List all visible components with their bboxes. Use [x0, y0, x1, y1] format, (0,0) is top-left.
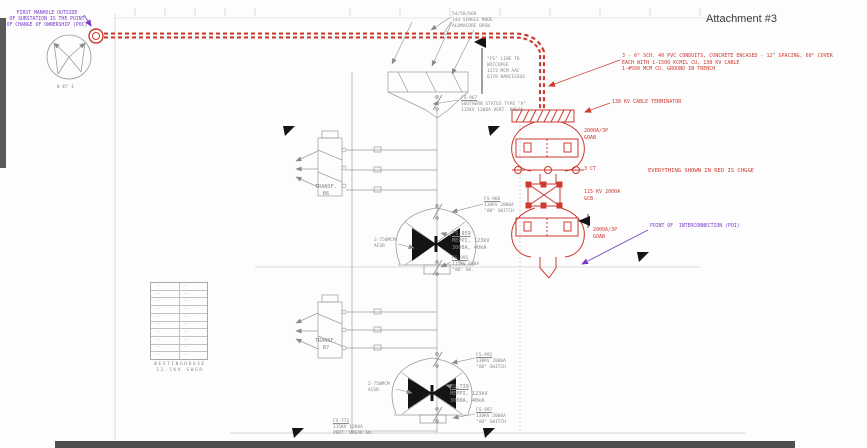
cable-terminator-label: 138 KV CABLE TERMINATOR: [612, 99, 681, 106]
table-cell: ··: [151, 283, 180, 290]
table-row: ·· ··: [151, 352, 207, 359]
table-row: ·· ··: [151, 291, 207, 299]
table-cell: ··: [180, 314, 208, 321]
fs967-label: FS-967 SOUTHERN STATES TYPE "V" 115KV 12…: [461, 96, 526, 114]
table-row: ·· ··: [151, 345, 207, 353]
fs991-label: FS-991 115KV 600A "AB" SW.: [452, 256, 479, 274]
gcb-label: 115 KV 2000A GCB: [584, 189, 620, 202]
table-cell: ··: [180, 283, 208, 290]
acsr-top-label: 2-750MCM ACSR: [374, 238, 396, 250]
fs959-label: FS-959 MEPPI, 123kV 3000A, 40kA: [452, 231, 489, 251]
table-cell: ··: [180, 345, 208, 352]
table-cell: ··: [180, 329, 208, 336]
compass-label: N 45° E: [57, 84, 74, 89]
fs997-label: FS-997 138KV 2000A "AB" SWITCH: [476, 408, 506, 426]
table-cell: ··: [180, 291, 208, 298]
fs992-label: FS-992 138KV 2000A "AB" SWITCH: [476, 353, 506, 371]
table-row: ·· ··: [151, 322, 207, 330]
transf-b6-label: TRANSF. B6: [308, 184, 344, 198]
goab-flag: [578, 214, 590, 228]
table-row: ·· ··: [151, 306, 207, 314]
substation-one-line-drawing: Attachment #3 FIRST MANHOLE OUTSIDE OF S…: [0, 0, 867, 448]
table-cell: ··: [180, 322, 208, 329]
acsr-bottom-label: 2-750MCM ACSR: [368, 382, 390, 394]
opgw-note: 54/58/669 144 SINGLE MODE ALUMACORE OPGW: [452, 12, 493, 30]
table-cell: ··: [180, 337, 208, 344]
red-note-leaders: [549, 60, 620, 112]
table-row: ·· ··: [151, 337, 207, 345]
bus-lines: [230, 72, 745, 433]
table-cell: ··: [151, 337, 180, 344]
table-cell: ··: [151, 322, 180, 329]
table-cell: ··: [151, 352, 180, 359]
device-schedule-table: ·· ·· ·· ·· ·· ·· ·· ·· ·· ·· ·· ·· ·· ·…: [150, 282, 208, 360]
table-cell: ··: [151, 345, 180, 352]
table-cell: ··: [180, 298, 208, 305]
table-cell: ··: [151, 329, 180, 336]
conduit-note: 3 - 6" SCH. 40 PVC CONDUITS, CONCRETE EN…: [622, 53, 833, 73]
goab-bottom-label: 2000A/3P GOAB: [593, 227, 617, 240]
table-cell: ··: [151, 291, 180, 298]
table-cell: ··: [180, 306, 208, 313]
disconnect-switch-symbols: [433, 95, 442, 422]
table-cell: ··: [151, 314, 180, 321]
table-cell: ··: [151, 306, 180, 313]
fs968-label: FS-968 138KV 2000A "AB" SWITCH: [484, 197, 514, 215]
table-row: ·· ··: [151, 283, 207, 291]
table-cell: ··: [151, 298, 180, 305]
poc-note: FIRST MANHOLE OUTSIDE OF SUBSTATION IS T…: [4, 11, 90, 30]
fs771-label: FS-771 115KV 1200A VERT. BREAK SW.: [333, 419, 374, 437]
red-138kv-equipment: [512, 110, 585, 278]
north-arrow-icon: [47, 35, 91, 79]
table-cell: ··: [180, 352, 208, 359]
goab-top-label: 2000A/3P GOAB: [584, 128, 608, 141]
fs739-label: FS-739 MEPPI, 123kV 3000A, 40kA: [450, 384, 487, 404]
table-row: ·· ··: [151, 314, 207, 322]
scan-dark-edges: [0, 18, 795, 448]
ct-label: 3 CT: [584, 166, 596, 173]
transf-b7-label: TRANSF. B7: [308, 338, 344, 352]
table-row: ·· ··: [151, 298, 207, 306]
poi-label: POINT OF INTERCONNECTION (POI): [650, 224, 740, 230]
table-row: ·· ··: [151, 329, 207, 337]
red-scope-note: EVERYTHING SHOWN IN RED IS CHG&E: [648, 168, 754, 175]
attachment-title: Attachment #3: [706, 12, 777, 26]
switchgear-label: WESTINGHOUSE 12.5KV SWGR: [140, 362, 220, 374]
fs-line-note: "FS" LINE TO WICCOPEE 1272 MCM AAC 6178 …: [487, 57, 525, 80]
label-leaders: [334, 17, 483, 431]
